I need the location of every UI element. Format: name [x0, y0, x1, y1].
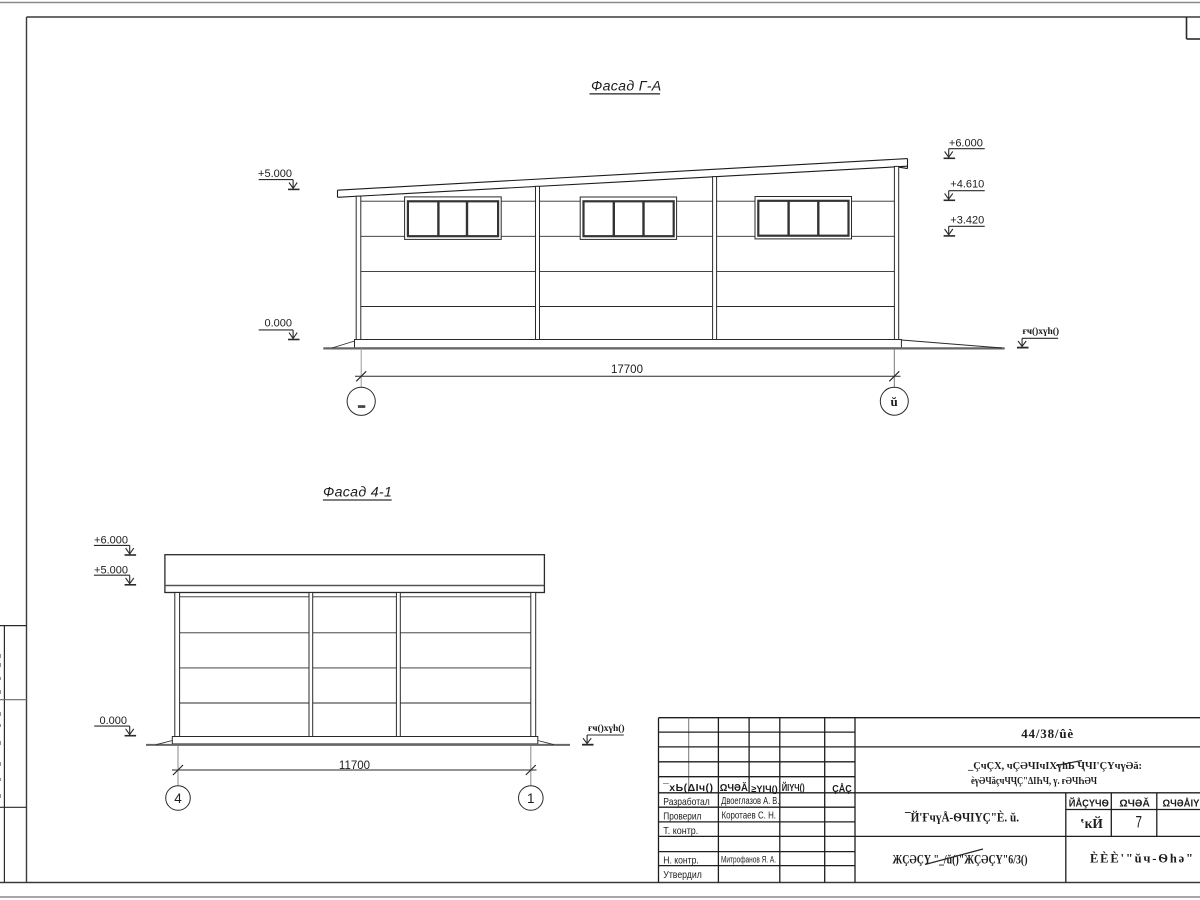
svg-text:17700: 17700 [611, 364, 643, 376]
svg-text:+3.420: +3.420 [950, 214, 984, 226]
svg-text:ѐүӘЧăçчЧҶÇ"ΔΙҺЧ, ү. ғӘЧҺӘЧ: ѐүӘЧăçчЧҶÇ"ΔΙҺЧ, ү. ғӘЧҺӘЧ [971, 775, 1097, 787]
svg-text:ғҹ()хүһ(): ғҹ()хүһ() [588, 723, 625, 734]
svg-text:0.000: 0.000 [264, 318, 292, 330]
svg-text:4: 4 [174, 791, 182, 806]
svg-text:ΩЧӘĂ: ΩЧӘĂ [1119, 797, 1150, 810]
svg-text:+6.000: +6.000 [949, 137, 983, 149]
svg-text:Т. контр.: Т. контр. [663, 825, 698, 837]
svg-text:+5.000: +5.000 [258, 168, 292, 180]
svg-text:7: 7 [1135, 813, 1142, 831]
svg-text:ÈÈÈ'"ŭч-Ѳһә": ÈÈÈ'"ŭч-Ѳһә" [1090, 852, 1193, 866]
svg-text:+6.000: +6.000 [94, 534, 128, 546]
svg-text:≥ΥΙЧ(): ≥ΥΙЧ() [751, 784, 778, 795]
svg-text:ΩЧӘĂ: ΩЧӘĂ [720, 781, 748, 794]
svg-text:ЙÅÇΥЧѲ: ЙÅÇΥЧѲ [1069, 798, 1109, 810]
svg-text:Фасад Г-А: Фасад Г-А [591, 79, 662, 95]
svg-text:Коротаев С. Н.: Коротаев С. Н. [722, 811, 777, 822]
svg-text:Разработал: Разработал [663, 796, 710, 808]
svg-text:ғҹ()хүһ(): ғҹ()хүһ() [1023, 326, 1060, 337]
svg-text:ŭ: ŭ [890, 394, 897, 409]
svg-text:¯Й'ҒчүÅ-ѲЧΙΥÇ"È. ŭ.: ¯Й'ҒчүÅ-ѲЧΙΥÇ"È. ŭ. [904, 811, 1019, 825]
svg-text:+4.610: +4.610 [950, 179, 984, 191]
svg-text:44/38/ûѐ: 44/38/ûѐ [1021, 726, 1073, 741]
svg-text:Двоеглазов А. В.: Двоеглазов А. В. [721, 796, 779, 807]
svg-text:Митрофанов Я. А.: Митрофанов Я. А. [721, 855, 776, 865]
svg-text:ΩЧӘÅΙΥ: ΩЧӘÅΙΥ [1163, 797, 1200, 810]
svg-text:0.000: 0.000 [99, 715, 127, 727]
svg-text:¯хЬ(ΔΙч(): ¯хЬ(ΔΙч() [662, 782, 713, 794]
svg-text:ÇÅÇ: ÇÅÇ [832, 782, 852, 795]
svg-text:1: 1 [527, 791, 535, 806]
svg-text:Утвердил: Утвердил [663, 869, 702, 881]
svg-text:Проверил: Проверил [663, 810, 701, 822]
svg-text:ʽкЙ: ʽкЙ [1080, 816, 1103, 831]
svg-text:ЙΙΥЧ(): ЙΙΥЧ() [782, 781, 805, 794]
svg-text:Фасад 4-1: Фасад 4-1 [323, 485, 392, 501]
svg-text:Н. контр.: Н. контр. [663, 855, 699, 867]
svg-text:11700: 11700 [339, 760, 370, 772]
svg-text:_ÇчÇХ, чÇӘЧΙчΙХүһЬ ҶЧΙ'ÇΥчүӘă:: _ÇчÇХ, чÇӘЧΙчΙХүһЬ ҶЧΙ'ÇΥчүӘă: [967, 760, 1142, 772]
